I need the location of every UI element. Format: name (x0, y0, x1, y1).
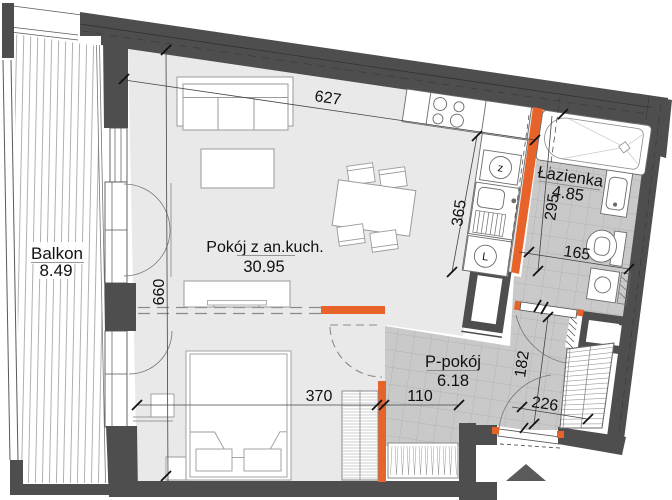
svg-text:660: 660 (151, 279, 168, 306)
svg-text:370: 370 (306, 388, 333, 405)
svg-text:8.49: 8.49 (39, 261, 72, 280)
svg-text:Pokój z an.kuch.: Pokój z an.kuch. (206, 239, 323, 256)
svg-text:110: 110 (407, 388, 433, 405)
svg-text:30.95: 30.95 (243, 258, 284, 276)
svg-text:P-pokój: P-pokój (425, 353, 481, 371)
svg-text:6.18: 6.18 (437, 372, 469, 390)
